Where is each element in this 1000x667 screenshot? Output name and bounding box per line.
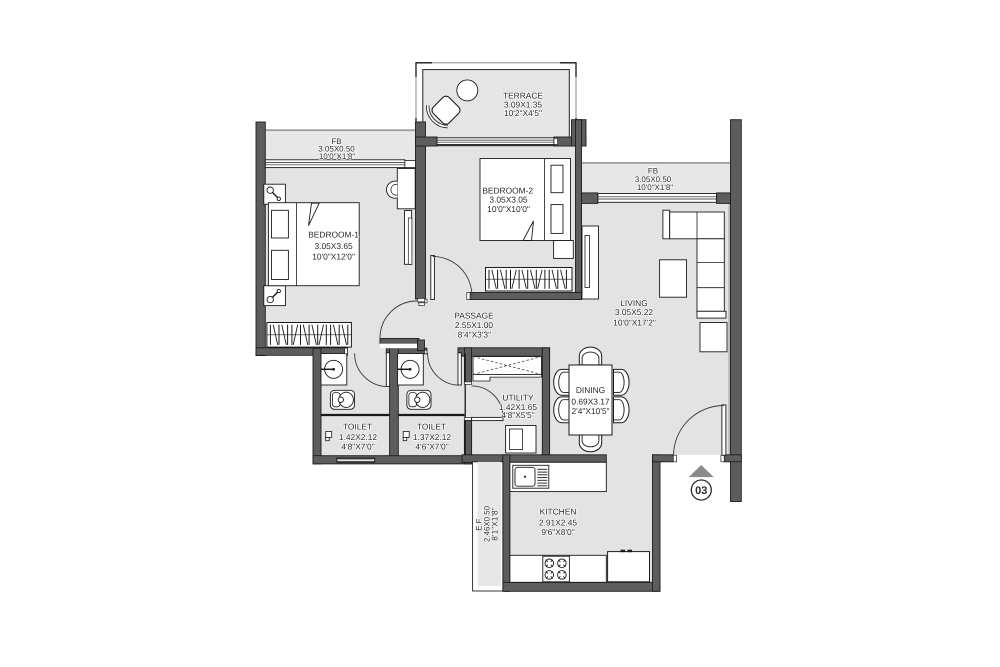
- svg-text:10'0"X17'2": 10'0"X17'2": [613, 317, 656, 327]
- svg-text:PASSAGE: PASSAGE: [454, 310, 494, 320]
- svg-text:9'6"X8'0": 9'6"X8'0": [541, 527, 574, 537]
- svg-text:4'6"X7'0": 4'6"X7'0": [415, 442, 448, 452]
- svg-text:10'0"X1'8": 10'0"X1'8": [319, 152, 355, 161]
- svg-text:2'4"X10'5": 2'4"X10'5": [571, 406, 609, 416]
- svg-text:2.91X2.45: 2.91X2.45: [539, 517, 578, 527]
- svg-text:UTILITY: UTILITY: [502, 392, 534, 402]
- svg-text:3.05X3.65: 3.05X3.65: [315, 241, 354, 251]
- svg-text:8'4"X3'3": 8'4"X3'3": [458, 329, 491, 339]
- svg-text:3.05X5.22: 3.05X5.22: [615, 307, 654, 317]
- svg-text:10'2"X4'5": 10'2"X4'5": [504, 108, 542, 118]
- svg-text:10'0"X1'8": 10'0"X1'8": [637, 183, 673, 192]
- svg-text:10'0"X12'0": 10'0"X12'0": [312, 251, 355, 261]
- svg-text:03: 03: [695, 485, 707, 497]
- svg-text:2.55X1.00: 2.55X1.00: [455, 320, 494, 330]
- svg-text:3.05X3.05: 3.05X3.05: [489, 195, 528, 205]
- svg-text:4'8"X5'5": 4'8"X5'5": [501, 410, 534, 420]
- svg-text:DINING: DINING: [576, 385, 605, 395]
- svg-text:BEDROOM-1: BEDROOM-1: [308, 229, 359, 239]
- svg-text:4'8"X7'0": 4'8"X7'0": [341, 442, 374, 452]
- svg-text:8'1"X1'8": 8'1"X1'8": [490, 507, 500, 540]
- svg-text:0.69X3.17: 0.69X3.17: [571, 396, 610, 406]
- svg-text:TOILET: TOILET: [417, 421, 446, 431]
- svg-text:KITCHEN: KITCHEN: [540, 506, 577, 516]
- svg-text:10'0"X10'0": 10'0"X10'0": [487, 204, 530, 214]
- svg-text:TOILET: TOILET: [343, 421, 372, 431]
